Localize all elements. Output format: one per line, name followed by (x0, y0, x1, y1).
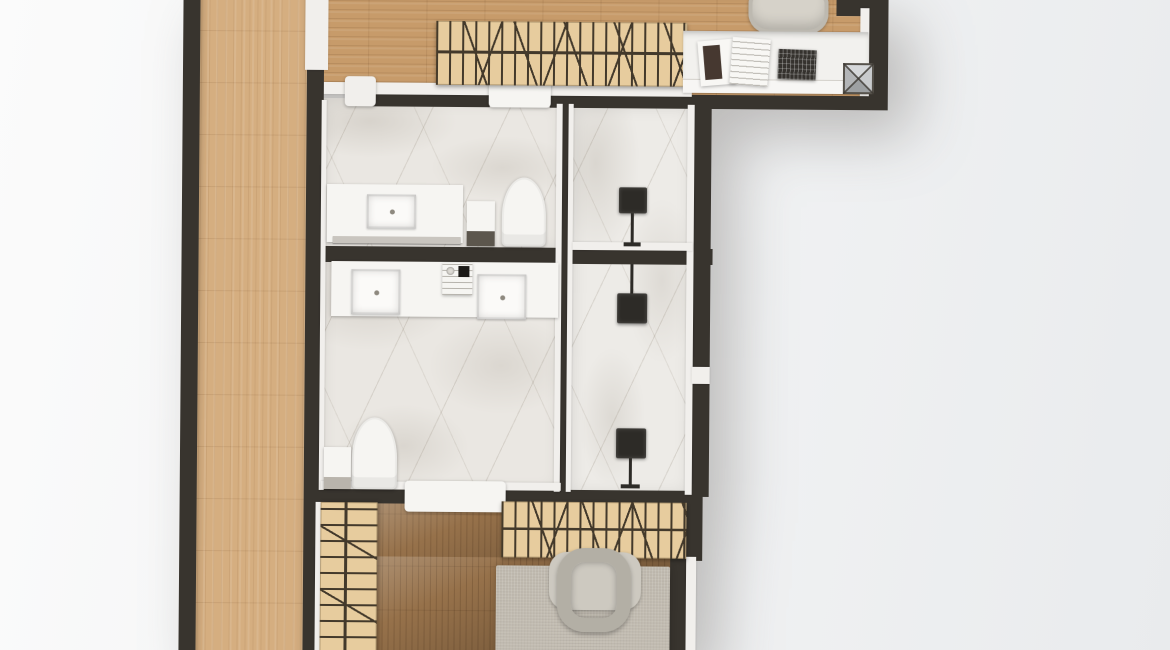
control-unit-knob (446, 267, 454, 275)
wall-exterior-right-jog (684, 497, 703, 561)
floor-lamp-stem-1 (631, 213, 634, 245)
floor-lamp-stem-3 (629, 458, 632, 486)
floor-lamp-shade-2 (617, 293, 647, 323)
floor-lamp-foot-1 (624, 242, 641, 246)
vanity-top-edge (333, 236, 461, 244)
pyramid-skylight (843, 63, 874, 94)
toilet-middle (352, 417, 398, 489)
sink-middle-right (477, 274, 526, 319)
pillar-corridor-top (305, 0, 329, 70)
control-unit-display (458, 266, 469, 277)
wall-exterior-right-bottom (669, 557, 687, 650)
lounge-chair-back (557, 548, 632, 633)
storage-box (324, 447, 351, 489)
threshold-living-door (405, 481, 506, 513)
sink-drain (389, 209, 394, 214)
floor-lamp-shade-3 (616, 428, 646, 458)
floor-lamp-foot-3 (621, 484, 640, 488)
desk-chair (748, 0, 828, 34)
wall-bathroom-top-north-b (550, 94, 888, 111)
toilet-top (502, 177, 547, 246)
sink-top (367, 194, 416, 228)
keyboard-tray (777, 49, 816, 81)
cabinet-base (467, 231, 495, 246)
floor-lamp-stem-2 (630, 264, 633, 294)
sink-drain (374, 290, 379, 295)
wall-gap-window-right (692, 367, 710, 384)
notebook-page (729, 37, 771, 87)
control-unit (442, 263, 472, 295)
threshold-hallway-left (345, 76, 376, 106)
magazine-photo (703, 45, 723, 80)
sink-drain (500, 295, 505, 300)
stair-screen-left (319, 502, 377, 650)
liner-right-bottom-outer (685, 557, 696, 650)
building-model (0, 0, 1170, 650)
sink-middle-left (351, 269, 400, 314)
floorplan-render (0, 0, 1170, 650)
storage-box-base (324, 477, 351, 489)
floor-lamp-shade-1 (619, 187, 647, 213)
storage-cabinet (467, 201, 495, 246)
corridor-floor (193, 0, 310, 650)
stair-screen-top (436, 21, 687, 87)
